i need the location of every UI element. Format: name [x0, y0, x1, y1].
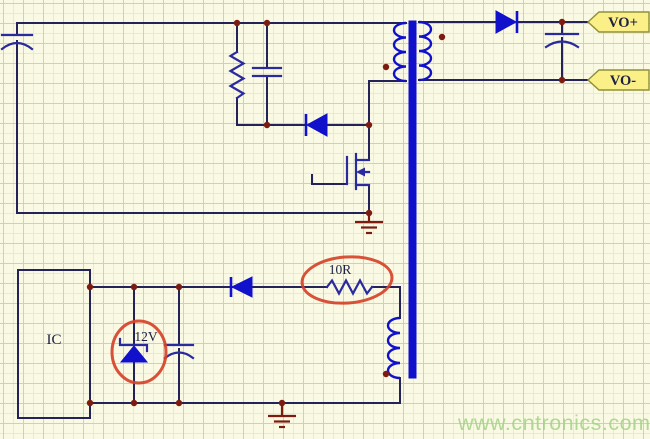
mosfet — [347, 154, 369, 189]
zener-value-label: 12V — [134, 329, 158, 344]
schematic-canvas: VO+ VO- IC — [0, 0, 650, 439]
aux-phase-dot — [383, 371, 389, 377]
resistor-10r — [327, 281, 372, 294]
snubber-resistor — [231, 52, 244, 98]
secondary-phase-dot — [439, 34, 445, 40]
gate-stub-wire — [312, 175, 347, 184]
signal-ground-symbol — [268, 403, 296, 427]
ic-block: IC — [18, 270, 90, 418]
vo-plus-tag: VO+ — [588, 12, 649, 32]
aux-winding — [388, 318, 400, 378]
output-rectifier-diode — [496, 11, 517, 33]
ic-label: IC — [47, 332, 62, 348]
vo-minus-tag: VO- — [588, 70, 649, 90]
vo-plus-label: VO+ — [608, 15, 638, 31]
secondary-winding — [419, 22, 431, 80]
snubber-capacitor — [253, 68, 281, 76]
zener-triangle — [121, 346, 147, 362]
watermark-text: www.cntronics.com — [457, 411, 650, 435]
resistor-value-label: 10R — [329, 262, 352, 277]
primary-winding — [394, 23, 406, 81]
snubber-diode — [306, 114, 327, 136]
wires — [17, 22, 589, 403]
transformer — [383, 21, 445, 378]
primary-phase-dot — [383, 64, 389, 70]
mosfet-arrow — [356, 168, 365, 177]
primary-bottom-lead — [369, 81, 406, 125]
diode-triangle — [307, 114, 327, 136]
vo-minus-label: VO- — [610, 73, 636, 89]
vcc-diode — [231, 277, 252, 297]
diode-triangle — [496, 11, 516, 33]
transformer-core — [409, 21, 416, 378]
diode-triangle — [232, 277, 252, 297]
circuit-schematic: VO+ VO- IC — [0, 0, 650, 439]
